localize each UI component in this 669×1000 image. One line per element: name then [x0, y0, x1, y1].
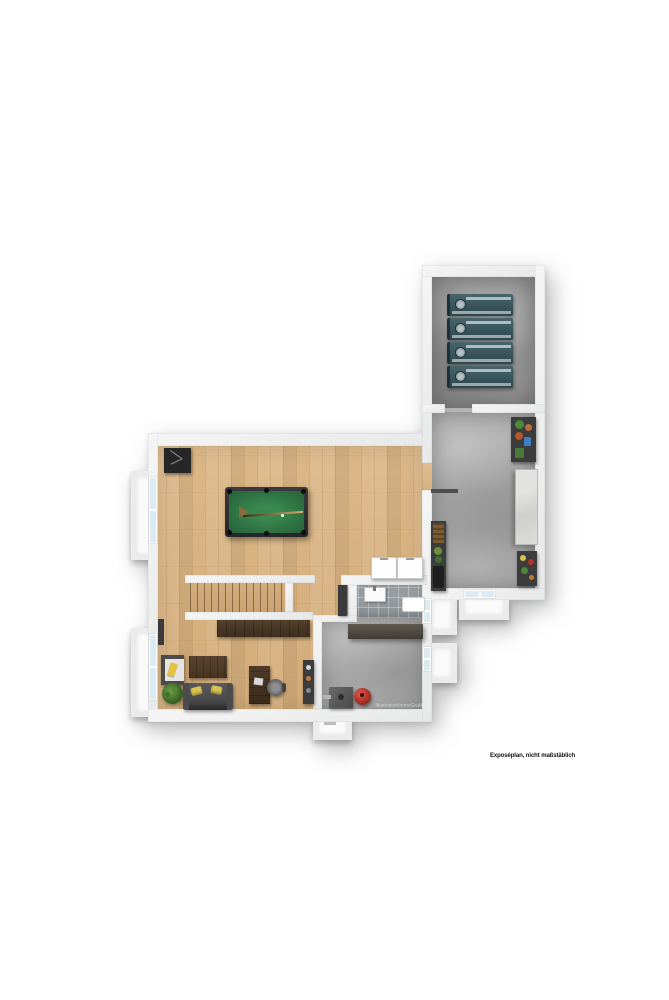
storage-unit: [447, 318, 513, 340]
coffee-table: [189, 656, 227, 678]
knob: [455, 371, 466, 382]
storage-rack: [303, 660, 314, 704]
storage-unit: [447, 294, 513, 316]
office-chair: [267, 679, 284, 696]
plant: [162, 683, 183, 704]
knob: [455, 347, 466, 358]
wall: [313, 618, 322, 709]
boiler: [329, 687, 353, 708]
passage-cabinet: [338, 585, 347, 616]
window: [464, 590, 495, 598]
shower-tray: [402, 597, 425, 612]
light-well: [459, 598, 509, 620]
laptop: [254, 677, 264, 685]
storage-unit: [447, 342, 513, 364]
floor-plan-page: IllustrationImmoGrafik: [0, 0, 669, 1000]
wall-shelf: [161, 655, 184, 685]
wall: [348, 585, 357, 618]
light-well: [432, 643, 457, 683]
radiator: [158, 619, 164, 645]
wall: [422, 265, 432, 463]
plan-caption: Exposéplan, nicht maßstäblich: [490, 753, 570, 759]
sink: [364, 587, 386, 602]
window: [423, 647, 431, 671]
watermark: IllustrationImmoGrafik: [352, 703, 424, 709]
wall: [422, 404, 445, 413]
washing-machine: [371, 557, 397, 579]
faucet: [373, 586, 376, 591]
pot-shelf: [511, 417, 536, 462]
storage-units: [447, 294, 513, 392]
wall: [472, 404, 545, 413]
wood-boards: [433, 523, 444, 543]
small-shelf: [517, 551, 537, 586]
tall-shelf: [431, 521, 446, 591]
pool-table: [225, 487, 308, 537]
partition-stub: [431, 489, 458, 493]
wall: [285, 583, 293, 612]
wall: [185, 612, 313, 620]
knob: [455, 299, 466, 310]
doorway: [422, 463, 432, 490]
workbench: [348, 624, 423, 639]
bags: [433, 566, 444, 588]
storage-unit: [447, 366, 513, 388]
sofa: [183, 683, 233, 710]
wall: [422, 265, 545, 277]
pipe: [323, 695, 331, 699]
window: [149, 634, 157, 700]
knob: [455, 323, 466, 334]
staircase: [190, 583, 286, 612]
wall: [148, 709, 432, 722]
console-table: [515, 469, 538, 545]
floor-plan: IllustrationImmoGrafik: [0, 0, 669, 1000]
dryer: [397, 557, 423, 579]
wall: [148, 433, 432, 446]
wall: [185, 575, 315, 583]
cue-ball: [281, 514, 284, 517]
window: [149, 477, 157, 543]
light-well: [432, 595, 457, 635]
pillow: [190, 686, 203, 696]
sideboard: [217, 620, 310, 637]
pillow: [210, 685, 222, 695]
dartboard-cabinet: [164, 448, 191, 473]
wall: [535, 265, 545, 600]
